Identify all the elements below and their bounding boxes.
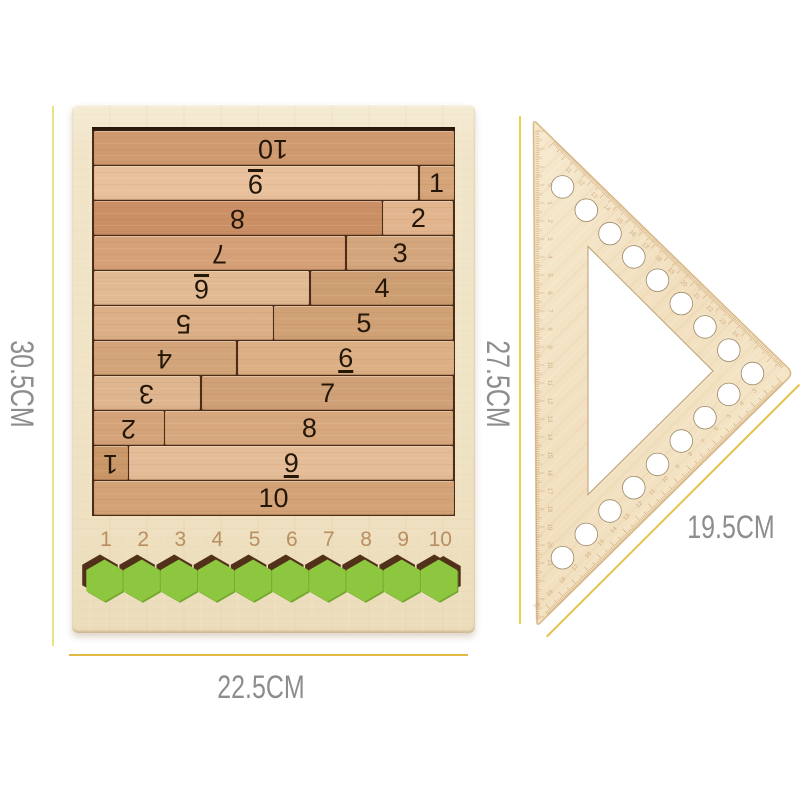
svg-text:15: 15 — [546, 452, 552, 459]
svg-text:17: 17 — [546, 488, 552, 495]
svg-text:14: 14 — [546, 434, 552, 441]
svg-text:18: 18 — [546, 506, 552, 513]
svg-text:12: 12 — [546, 398, 552, 405]
svg-text:21: 21 — [546, 560, 552, 567]
svg-text:11: 11 — [546, 380, 552, 387]
svg-text:10: 10 — [546, 362, 552, 369]
svg-text:20: 20 — [546, 542, 552, 549]
svg-text:13: 13 — [546, 416, 552, 423]
svg-text:19: 19 — [546, 524, 552, 531]
svg-text:16: 16 — [546, 470, 552, 477]
